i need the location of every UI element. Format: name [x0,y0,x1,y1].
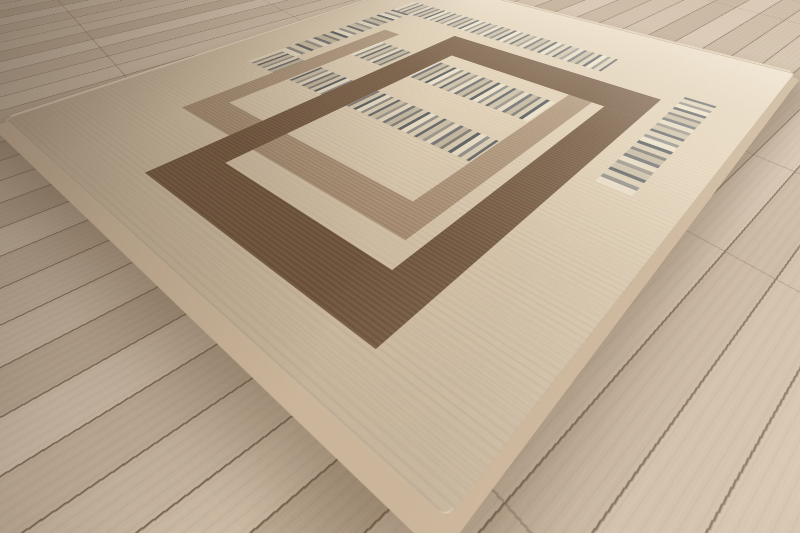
ground-plane [8,0,793,512]
room-photo: Photograph of a rectangular beige wool a… [0,0,800,533]
